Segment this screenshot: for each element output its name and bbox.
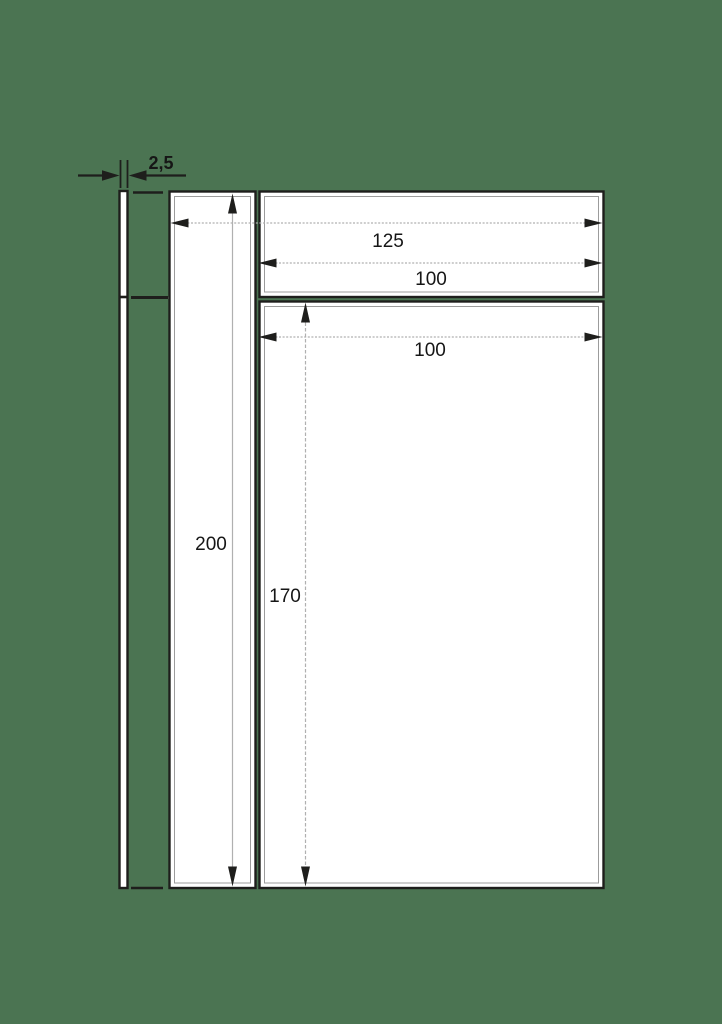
thickness-dim-label: 2,5: [148, 153, 173, 173]
total-height-dim-label: 200: [195, 534, 227, 555]
main-section-panel: [260, 302, 604, 889]
main-section-height-dim-label: 170: [269, 586, 301, 607]
top-section-width-dim-label: 100: [415, 269, 447, 290]
total-width-dim-label: 125: [372, 231, 404, 252]
dimension-drawing-page: 2,5 125 100 100 200: [0, 0, 722, 1024]
thin-panel-edge-view: [120, 191, 128, 888]
dimension-drawing-canvas: 2,5 125 100 100 200: [0, 0, 722, 1024]
main-section-width-dim-label: 100: [414, 340, 446, 361]
